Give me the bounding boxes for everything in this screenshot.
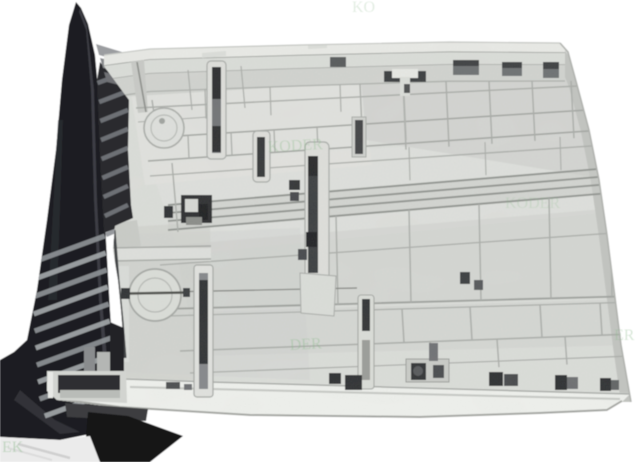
svg-text:KODER: KODER (267, 136, 323, 156)
svg-text:DER: DER (289, 335, 322, 354)
svg-text:KO: KO (352, 0, 375, 16)
svg-text:KODER: KODER (505, 195, 560, 212)
svg-text:EK: EK (2, 439, 24, 456)
svg-text:ER: ER (614, 327, 635, 344)
